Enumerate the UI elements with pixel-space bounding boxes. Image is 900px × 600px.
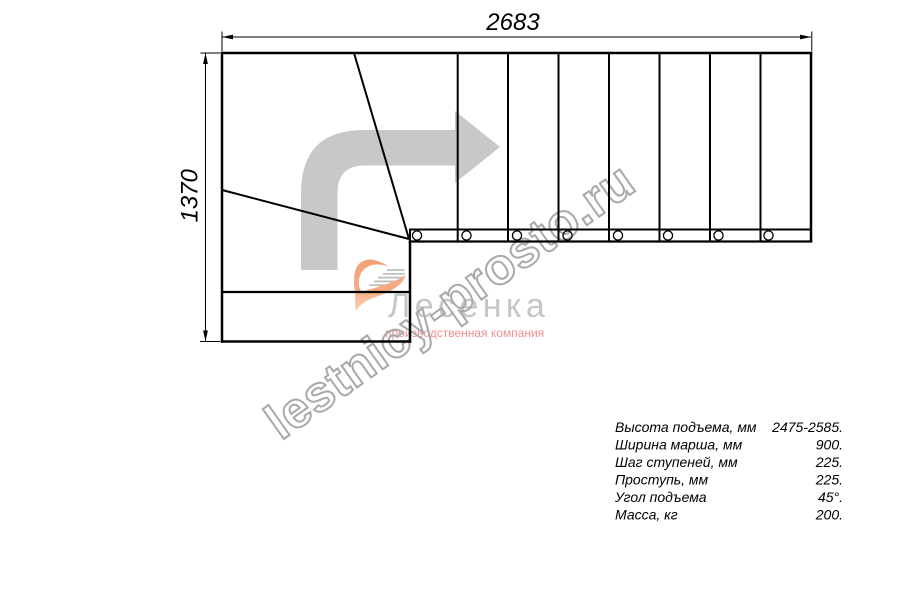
svg-text:Масса, кг: Масса, кг — [615, 507, 678, 523]
svg-text:900.: 900. — [816, 437, 843, 453]
svg-text:Высота подъема, мм: Высота подъема, мм — [615, 419, 757, 435]
svg-text:225.: 225. — [815, 454, 843, 470]
svg-text:Шаг ступеней, мм: Шаг ступеней, мм — [615, 454, 738, 470]
svg-text:45°.: 45°. — [818, 489, 843, 505]
svg-text:Ширина марша, мм: Ширина марша, мм — [615, 437, 743, 453]
svg-text:Угол подъема: Угол подъема — [614, 489, 707, 505]
svg-text:2475-2585.: 2475-2585. — [771, 419, 843, 435]
svg-text:Проступь, мм: Проступь, мм — [615, 472, 709, 488]
svg-text:200.: 200. — [815, 507, 843, 523]
svg-text:2683: 2683 — [485, 9, 540, 36]
svg-text:1370: 1370 — [177, 168, 204, 222]
svg-text:225.: 225. — [815, 472, 843, 488]
